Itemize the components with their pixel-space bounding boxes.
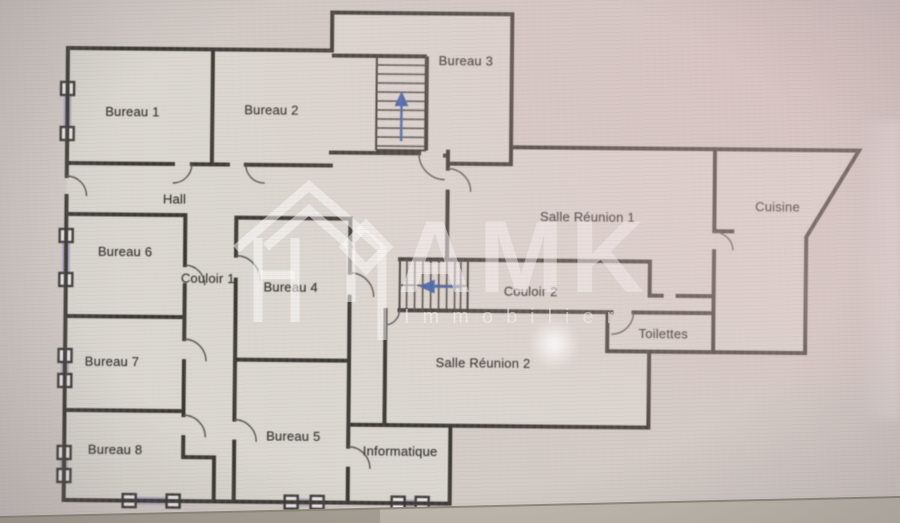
room-label-bureau-1: Bureau 1: [105, 104, 160, 120]
room-label-toilettes: Toilettes: [638, 326, 688, 341]
room-label-informatique: Informatique: [363, 443, 438, 459]
room-label-salle-reunion-1: Salle Réunion 1: [540, 209, 635, 225]
floor-plan: Bureau 1 Bureau 2 Bureau 3 Hall Salle Ré…: [0, 0, 900, 523]
room-label-bureau-7: Bureau 7: [85, 354, 140, 370]
floor-plan-photo: Bureau 1 Bureau 2 Bureau 3 Hall Salle Ré…: [0, 0, 900, 523]
room-label-couloir-2: Couloir 2: [504, 284, 558, 300]
room-label-bureau-4: Bureau 4: [263, 279, 318, 295]
room-label-salle-reunion-2: Salle Réunion 2: [436, 355, 531, 371]
room-label-cuisine: Cuisine: [755, 199, 800, 214]
room-label-bureau-5: Bureau 5: [266, 428, 321, 444]
room-label-bureau-3: Bureau 3: [439, 53, 494, 69]
room-label-bureau-6: Bureau 6: [98, 244, 153, 260]
room-label-hall: Hall: [163, 191, 186, 206]
room-label-bureau-8: Bureau 8: [88, 442, 143, 458]
room-label-couloir-1: Couloir 1: [181, 271, 235, 287]
room-label-bureau-2: Bureau 2: [244, 102, 299, 118]
